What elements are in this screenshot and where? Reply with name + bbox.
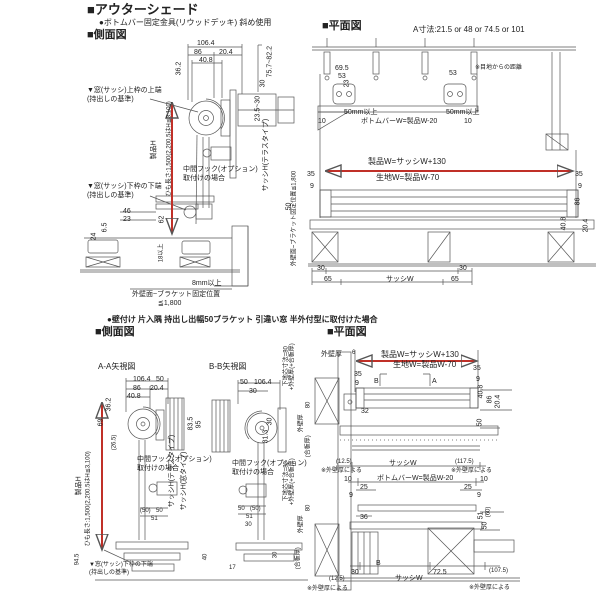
wall-thickness-v-1: 外壁厚 [299,414,305,432]
aa-dim-26-5: (26.5) [112,435,118,451]
cord-length-label: ひも長さ:1,500(2,200.5はH≦3,100) [167,101,173,196]
dim-23-5-30: 23.5~30 [255,96,262,122]
dim-18-min: 18以上 [159,244,165,263]
dim-20-4-plan: 20.4 [583,219,590,233]
product-height-label: 製品H [151,140,158,159]
plan-a-dim-note: A寸法:21.5 or 48 or 74.5 or 101 [413,26,525,34]
bb-dim-30b: 30 [245,522,252,528]
br-dim-32: 32 [361,408,369,415]
sheet-title: ■アウターシェード [87,3,199,17]
br-dim-10-left: 10 [344,476,352,483]
aa-dim-20-4: 20.4 [150,385,164,392]
dim-50mm-min-right: 50mm以上 [446,109,479,116]
aa-dim-36-2: 36.2 [106,398,113,412]
dim-35-left: 35 [307,171,315,178]
base-core-add-1: +外壁厚(+合板厚) [290,343,296,390]
sheet-subtitle: ●ボトムバー固定金具(リウッドデッキ) 斜め使用 [99,19,271,27]
br-dim-20-4: 20.4 [495,395,502,409]
aa-dim-106-4: 106.4 [133,376,151,383]
heading-plan-view-bottom: ■平面図 [327,327,367,339]
section-marker-b: B [374,378,379,385]
br-dim-35-left: 35 [354,371,362,378]
dim-10-left: 10 [318,118,326,125]
dim-80-2: 80 [306,505,312,512]
br-dim-9-right: 9 [476,376,480,383]
bb-dim-50b: 50 [238,506,245,512]
dim-9-left: 9 [310,183,314,190]
bb-dim-106-4: 106.4 [254,379,272,386]
bb-view-label: B-B矢視図 [209,363,246,371]
dim-65-br: 65 [451,276,459,283]
bb-dim-40: 40 [203,554,209,561]
joint-distance-note: ※目地からの距離 [475,65,522,71]
dim-23-plan: 23 [344,80,351,88]
aa-dim-69: 69 [98,419,105,427]
section-marker-a: A [432,378,437,385]
base-core-add-2: +外壁厚(+合板厚) [290,458,296,505]
dim-24: 24 [91,233,98,241]
aa-dim-51: 51 [151,516,158,522]
dim-106-4: 106.4 [197,40,215,47]
wall-thickness-label: 外壁厚 [321,351,342,358]
dim-6-5: 6.5 [102,223,109,233]
product-width-formula: 製品W=サッシW+130 [368,158,446,166]
dim-36-2: 36.2 [176,62,183,76]
aa-product-height: 製品H [76,476,83,495]
bb-mid-hook-2: 取付けの場合 [232,469,274,476]
br-dim-50: 50 [477,419,484,427]
heading-side-view-top: ■側面図 [87,30,127,42]
br-dim-60p: (60) [486,507,492,518]
dim-53-right: 53 [449,70,457,77]
bb-dim-30v2: 30 [273,552,279,559]
br-dim-9-left: 9 [355,380,359,387]
br-dim-12-5-bottom: (12.5) [329,576,345,582]
bb-dim-17: 17 [229,565,236,571]
br-product-width-formula: 製品W=サッシW+130 [381,351,459,359]
wall-thickness-v-2: 外壁厚 [299,515,305,533]
note-mid-hook-2: 取付けの場合 [183,175,225,182]
dim-46: 46 [123,208,131,215]
sash-width-label: サッシW [386,276,414,283]
aa-note-datum: (持出しの基準) [89,570,129,576]
dim-86-plan: 86 [575,198,582,206]
dim-65-bl: 65 [324,276,332,283]
bb-dim-31-3: 31.3 [263,430,270,444]
br-dim-50b: 50 [482,522,489,530]
bottom-side-views-drawing [95,378,308,580]
sash-h-terrace-label: サッシH(テラスタイプ) [263,119,270,192]
dim-50mm-min-left: 50mm以上 [344,109,377,116]
dim-6: 6 [352,350,355,356]
br-dim-40-8: 40.8 [478,385,485,399]
br-dim-9b-right: 9 [477,492,481,499]
bb-dim-30v: 30 [267,418,274,426]
br-dim-25-right: 25 [464,484,472,491]
br-dim-9b-left: 9 [349,492,353,499]
dim-40-8-plan: 40.8 [561,217,568,231]
wall-bracket-max-label: ≦1,800 [158,300,181,307]
aa-dim-86: 86 [133,385,141,392]
aa-note-lower-edge: ▼窓(サッシ)下枠の下端 [89,562,153,568]
aa-dim-50p: (50) [140,508,151,514]
br-dim-25-left: 25 [360,484,368,491]
br-fabric-width-formula: 生地W=製品W-70 [393,361,456,369]
dim-10-right: 10 [464,118,472,125]
fabric-width-formula: 生地W=製品W-70 [376,174,439,182]
dim-80-1: 80 [306,402,312,409]
note-mid-hook-1: 中間フック(オプション) [183,166,258,173]
dim-40-8: 40.8 [199,57,213,64]
br-dim-12-5: (12.5) [336,459,352,465]
note-lower-edge: ▼窓(サッシ)下枠の下端 [87,183,162,190]
dim-62: 62 [159,216,166,224]
dim-35-right: 35 [575,171,583,178]
bb-dim-83-5: 83.5 [188,417,195,431]
br-by-wall-bottom-left: ※外壁厚による [307,586,348,592]
wall-bracket-distance-vertical: 外壁面~ブラケット固定位置≦1,800 [292,171,298,267]
bottom-case-bullet: ●壁付け 片入隅 持出し出幅50ブラケット 引違い窓 半外付型に取付けた場合 [107,316,378,324]
dim-50-wall: 50 [286,203,293,211]
br-by-wall-bottom-right: ※外壁厚による [469,585,510,591]
br-dim-117-5: (117.5) [455,459,474,465]
aa-view-label: A-A矢視図 [98,363,135,371]
bb-dim-95: 95 [196,421,203,429]
aa-dim-50: 50 [156,376,164,383]
aa-dim-50b: 50 [156,508,163,514]
drawing-sheet: ■アウターシェード ●ボトムバー固定金具(リウッドデッキ) 斜め使用 ■側面図 … [0,0,600,600]
dim-75-7-82-2: 75.7~82.2 [267,46,274,77]
br-by-wall-left: ※外壁厚による [321,468,362,474]
dim-23: 23 [123,216,131,223]
note-lower-edge-datum: (持出しの基準) [87,192,134,199]
br-dim-107-5: (107.5) [489,568,508,574]
heading-side-view-bottom: ■側面図 [95,327,135,339]
bottombar-width-formula: ボトムバーW=製品W-20 [361,118,437,125]
board-thickness-2: (合板厚) [296,547,302,569]
bb-dim-51: 51 [246,514,253,520]
bb-dim-30: 30 [249,388,257,395]
br-dim-86: 86 [487,396,494,404]
aa-cord-length: ひも長さ:1,500(2,200.5はH≦3,100) [86,451,92,546]
dim-30: 30 [260,80,267,88]
note-upper-edge: ▼窓(サッシ)上枠の上端 [87,87,162,94]
br-sash-width-bottom: サッシW [395,575,423,582]
bb-dim-50p: (50) [250,506,261,512]
br-dim-30-bottom: 30 [351,569,359,576]
br-bottombar-width: ボトムバーW=製品W-20 [377,475,453,482]
wall-bracket-distance-label: 外壁面~ブラケット固定位置 [132,291,220,298]
br-by-wall-right: ※外壁厚による [451,468,492,474]
br-dim-10-right: 10 [480,476,488,483]
dim-86: 86 [194,49,202,56]
dim-9-right: 9 [578,183,582,190]
heading-plan-view-top: ■平面図 [322,21,362,33]
br-dim-35-right: 35 [473,365,481,372]
br-sash-width: サッシW [389,460,417,467]
board-thickness-1: (合板厚) [306,435,312,457]
dim-8mm-min: 8mm以上 [192,280,222,287]
dim-20-4: 20.4 [219,49,233,56]
aa-dim-94-5: 94.5 [75,554,81,566]
dim-69-5: 69.5 [335,65,349,72]
br-dim-72-5: 72.5 [433,569,447,576]
br-section-marker-b-bottom: B [376,560,381,567]
bb-sash-h-window: サッシH(窓タイプ) [181,452,188,511]
dim-30-bl: 30 [317,265,325,272]
br-dim-36: 36 [360,514,368,521]
bb-sash-h-terrace: サッシH(テラスタイプ) [169,435,176,508]
bb-dim-50: 50 [240,379,248,386]
aa-dim-40-8: 40.8 [127,393,141,400]
dim-30-br: 30 [459,265,467,272]
br-dim-51: 51 [478,512,485,520]
note-upper-edge-datum: (持出しの基準) [87,96,134,103]
